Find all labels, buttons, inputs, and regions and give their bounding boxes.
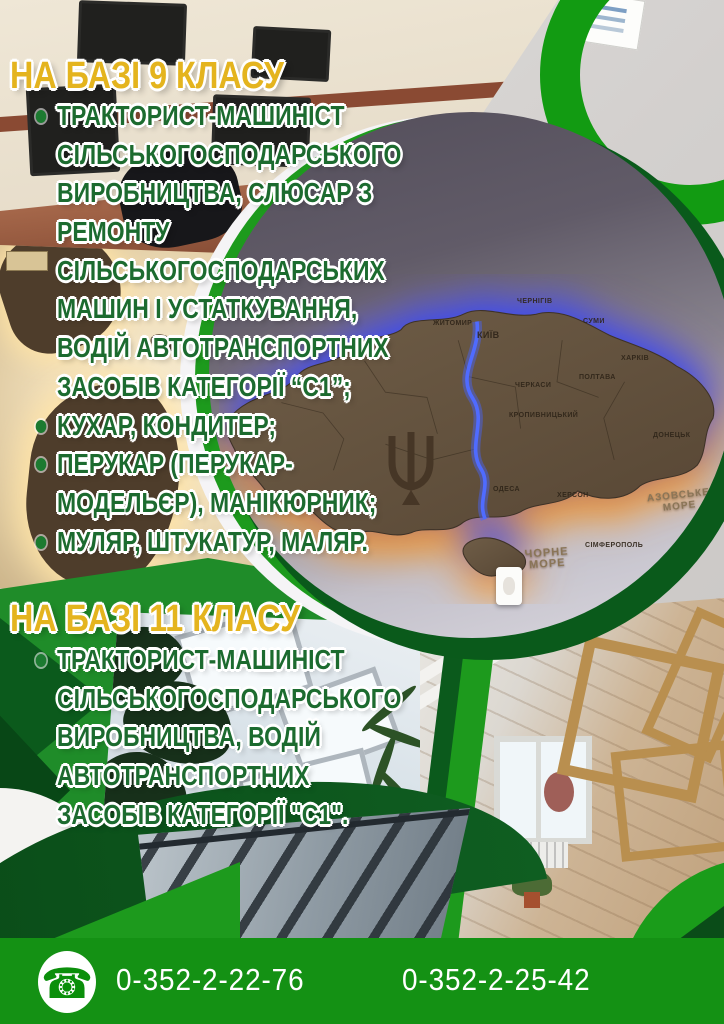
list-line-text: ЗАСОБІВ КАТЕГОРІЇ "С1". [57, 799, 348, 830]
list-line: СІЛЬСЬКОГОСПОДАРСЬКИХ [57, 252, 516, 291]
list-line-text: ПЕРУКАР (ПЕРУКАР- [57, 448, 293, 479]
list-line: ЗАСОБІВ КАТЕГОРІЇ "С1". [57, 796, 516, 835]
poster-page: ✈ [0, 0, 724, 1024]
list-line: ЗАСОБІВ КАТЕГОРІЇ “С1”; [57, 368, 516, 407]
list-line-text: ВИРОБНИЦТВА, ВОДІЙ [57, 721, 321, 752]
list-line-text: СІЛЬСЬКОГОСПОДАРСЬКОГО [57, 139, 401, 170]
list-line: МУЛЯР, ШТУКАТУР, МАЛЯР. [57, 523, 516, 562]
phone-icon: ☎ [38, 953, 96, 1015]
list-line-text: ТРАКТОРИСТ-МАШИНІСТ [57, 644, 345, 675]
city-label: ПОЛТАВА [579, 374, 616, 381]
window-foliage [544, 772, 574, 812]
list-line-text: ВИРОБНИЦТВА, СЛЮСАР З [57, 177, 372, 208]
heading-grade-11: НА БАЗІ 11 КЛАСУ [10, 598, 300, 641]
list-line-text: МАШИН І УСТАТКУВАННЯ, [57, 293, 357, 324]
list-line: ВИРОБНИЦТВА, СЛЮСАР З [57, 174, 516, 213]
city-label: СІМФЕРОПОЛЬ [585, 542, 643, 549]
list-line-text: КУХАР, КОНДИТЕР; [57, 410, 276, 441]
light-switch [496, 567, 522, 605]
profession-list-grade-11: ТРАКТОРИСТ-МАШИНІСТ СІЛЬСЬКОГОСПОДАРСЬКО… [57, 641, 516, 834]
bullet-dot [36, 654, 47, 667]
list-line: ВИРОБНИЦТВА, ВОДІЙ [57, 718, 516, 757]
list-line: КУХАР, КОНДИТЕР; [57, 407, 516, 446]
footer-bar: ☎ 0-352-2-22-76 0-352-2-25-42 [0, 938, 724, 1024]
city-label: ЧЕРНІГІВ [517, 298, 552, 305]
city-label: ДОНЕЦЬК [653, 432, 690, 439]
list-line: ТРАКТОРИСТ-МАШИНІСТ [57, 641, 516, 680]
phone-number-1: 0-352-2-22-76 [116, 962, 305, 998]
city-label: СУМИ [583, 318, 605, 325]
list-line-text: ЗАСОБІВ КАТЕГОРІЇ “С1”; [57, 371, 351, 402]
switch-knob [503, 577, 515, 595]
sea-label-black-sea: ЧОРНЕ МОРЕ [520, 546, 573, 572]
list-line: РЕМОНТУ [57, 213, 516, 252]
profession-list-grade-9: ТРАКТОРИСТ-МАШИНІСТ СІЛЬСЬКОГОСПОДАРСЬКО… [57, 97, 516, 561]
list-line-text: СІЛЬСЬКОГОСПОДАРСЬКИХ [57, 255, 385, 286]
list-line: МОДЕЛЬЄР), МАНІКЮРНИК; [57, 484, 516, 523]
list-line-text: РЕМОНТУ [57, 216, 170, 247]
bullet-dot [36, 110, 47, 123]
list-line: СІЛЬСЬКОГОСПОДАРСЬКОГО [57, 680, 516, 719]
list-line: АВТОТРАНСПОРТНИХ [57, 757, 516, 796]
window-bar [536, 742, 541, 838]
bullet-dot [36, 536, 47, 549]
list-line: ТРАКТОРИСТ-МАШИНІСТ [57, 97, 516, 136]
city-label: ХАРКІВ [621, 355, 649, 362]
list-line: СІЛЬСЬКОГОСПОДАРСЬКОГО [57, 136, 516, 175]
list-line-text: ТРАКТОРИСТ-МАШИНІСТ [57, 100, 345, 131]
city-label: ЧЕРКАСИ [515, 382, 551, 389]
bullet-dot [36, 420, 47, 433]
list-line-text: ВОДІЙ АВТОТРАНСПОРТНИХ [57, 332, 389, 363]
phone-number-2: 0-352-2-25-42 [402, 962, 591, 998]
list-line: ПЕРУКАР (ПЕРУКАР- [57, 445, 516, 484]
list-line: МАШИН І УСТАТКУВАННЯ, [57, 290, 516, 329]
list-line: ВОДІЙ АВТОТРАНСПОРТНИХ [57, 329, 516, 368]
wall-plaque [6, 251, 48, 271]
city-label: КРОПИВНИЦЬКИЙ [509, 412, 578, 419]
plant-pot [524, 892, 540, 908]
heading-grade-9: НА БАЗІ 9 КЛАСУ [10, 55, 284, 98]
list-line-text: МУЛЯР, ШТУКАТУР, МАЛЯР. [57, 526, 368, 557]
city-label: ХЕРСОН [557, 492, 589, 499]
list-line-text: АВТОТРАНСПОРТНИХ [57, 760, 309, 791]
list-line-text: СІЛЬСЬКОГОСПОДАРСЬКОГО [57, 683, 401, 714]
list-line-text: МОДЕЛЬЄР), МАНІКЮРНИК; [57, 487, 376, 518]
phone-icon-badge: ☎ [38, 951, 96, 1013]
